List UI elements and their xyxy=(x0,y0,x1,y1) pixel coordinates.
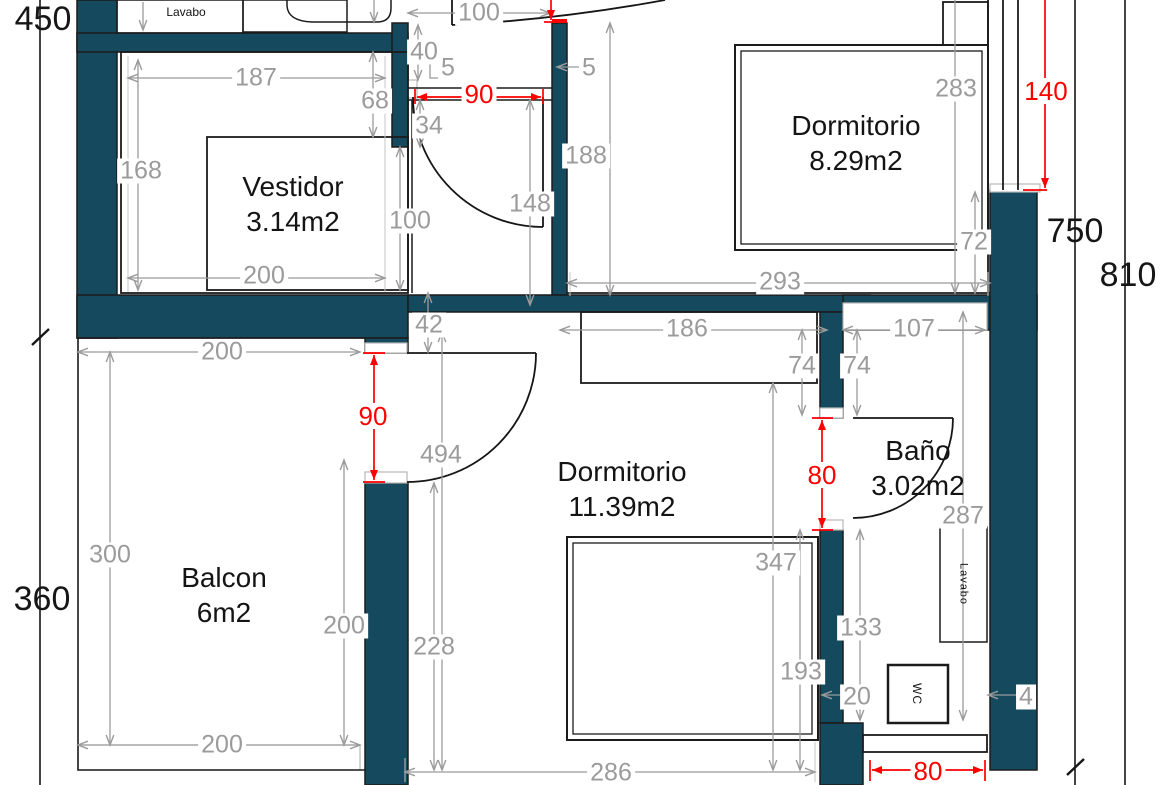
dim-pass-offset-74-right: 74 xyxy=(840,354,874,379)
dim-vestidor-bottom-width: 200 xyxy=(240,264,288,289)
room-area: 3.14m2 xyxy=(242,204,343,239)
wall-balcon-lower xyxy=(365,483,408,785)
fixture-label-lavabo-top: Lavabo xyxy=(166,6,205,18)
dim-dorm8-offset-72: 72 xyxy=(957,230,991,255)
room-label-vestidor: Vestidor 3.14m2 xyxy=(242,169,343,239)
floor-plan: 450 360 750 810 100 40 5 5 34 188 148 10… xyxy=(0,0,1170,785)
overall-dim-right-outer: 810 xyxy=(1100,258,1157,292)
dim-wall-offset-42: 42 xyxy=(412,313,446,338)
overall-dim-right-inner: 750 xyxy=(1047,214,1104,248)
dim-niche-offset-b: 5 xyxy=(579,56,599,81)
dim-hall-top-width: 100 xyxy=(455,1,503,26)
top-cabinet-box xyxy=(243,0,347,32)
room-name: Dormitorio xyxy=(557,454,686,489)
dim-bath-window-width: 80 xyxy=(911,758,946,784)
dim-dorm11-offset-228: 228 xyxy=(410,635,458,660)
wall-dorm-band xyxy=(408,295,870,312)
room-label-dormitorio-8: Dormitorio 8.29m2 xyxy=(791,108,920,178)
wall-top-band xyxy=(77,33,408,52)
dim-balcony-height: 300 xyxy=(86,543,134,568)
dim-balcony-inner-height: 200 xyxy=(320,614,368,639)
dim-lavabo-offset-4: 4 xyxy=(1016,685,1036,710)
dim-niche-offset-a: 5 xyxy=(438,56,458,81)
dim-vestidor-opening: 100 xyxy=(386,209,434,234)
fixture-label-wc: WC xyxy=(911,683,923,705)
dim-balcony-bottom-width: 200 xyxy=(198,733,246,758)
dim-dorm8-bed-height: 283 xyxy=(932,77,980,102)
wall-vestidor-balcon xyxy=(77,295,408,338)
dim-dorm8-width: 293 xyxy=(756,270,804,295)
dim-balcony-top-width: 200 xyxy=(198,340,246,365)
dim-wardrobe-width: 186 xyxy=(663,317,711,342)
dim-door-clear-494: 494 xyxy=(417,443,465,468)
wall-hall-stub xyxy=(392,23,408,147)
dim-bath-offset-133: 133 xyxy=(837,616,885,641)
overall-dim-left-lower: 360 xyxy=(14,582,71,616)
dim-bath-door-height: 80 xyxy=(805,462,840,488)
dim-hall-door-width: 90 xyxy=(462,81,497,107)
room-area: 8.29m2 xyxy=(791,143,920,178)
dim-vestidor-height: 168 xyxy=(117,159,165,184)
room-label-balcon: Balcon 6m2 xyxy=(181,560,267,630)
dim-vestidor-width: 187 xyxy=(232,66,280,91)
dim-balcony-door-height: 90 xyxy=(356,403,391,429)
dim-pass-offset-74-left: 74 xyxy=(785,354,819,379)
room-area: 6m2 xyxy=(181,595,267,630)
room-area: 3.02m2 xyxy=(871,468,964,503)
top-toilet-shape xyxy=(287,0,391,22)
wall-bath-bottom-block xyxy=(820,723,863,785)
dim-right-window-height: 140 xyxy=(1021,78,1070,104)
room-name: Baño xyxy=(871,433,964,468)
dim-wc-offset-20: 20 xyxy=(840,685,874,710)
room-area: 11.39m2 xyxy=(557,489,686,524)
room-label-bano: Baño 3.02m2 xyxy=(871,433,964,503)
dim-dorm11-bottom-width: 286 xyxy=(587,761,635,785)
bath-window xyxy=(863,735,987,752)
room-name: Vestidor xyxy=(242,169,343,204)
dim-hall-niche-depth: 40 xyxy=(407,40,441,65)
overall-dim-left-upper: 450 xyxy=(15,2,72,36)
dim-hall-wall-height: 188 xyxy=(562,144,610,169)
dim-dorm11-offset-193: 193 xyxy=(777,660,825,685)
overall-dimension-lines xyxy=(32,0,1125,785)
room-name: Balcon xyxy=(181,560,267,595)
nightstand xyxy=(943,2,988,45)
dim-hall-offset-34: 34 xyxy=(412,114,446,139)
dim-bath-top-width: 107 xyxy=(890,317,938,342)
room-label-dormitorio-11: Dormitorio 11.39m2 xyxy=(557,454,686,524)
fixture-label-lavabo-bano: Lavabo xyxy=(958,563,969,605)
room-name: Dormitorio xyxy=(791,108,920,143)
dim-vestidor-offset-68: 68 xyxy=(358,89,392,114)
floor-plan-canvas xyxy=(0,0,1170,785)
dim-dorm11-offset-347: 347 xyxy=(752,551,800,576)
dim-hall-door-offset: 148 xyxy=(506,192,554,217)
dim-bath-height-287: 287 xyxy=(939,504,987,529)
